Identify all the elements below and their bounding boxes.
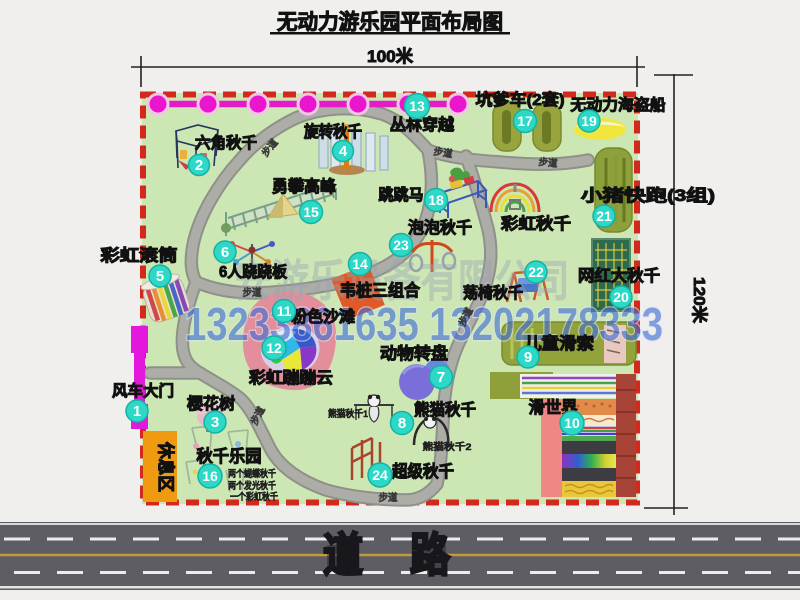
svg-text:彩虹滚筒: 彩虹滚筒 xyxy=(99,245,177,265)
svg-text:两个蝴蝶秋千: 两个蝴蝶秋千 xyxy=(228,468,276,480)
svg-text:17: 17 xyxy=(517,113,533,129)
svg-text:旋转秋千: 旋转秋千 xyxy=(303,122,362,141)
svg-text:8: 8 xyxy=(398,415,406,432)
svg-text:彩虹秋千: 彩虹秋千 xyxy=(500,214,571,233)
svg-text:韦桩三组合: 韦桩三组合 xyxy=(340,280,420,300)
svg-text:超级秋千: 超级秋千 xyxy=(392,461,454,481)
svg-text:休息区: 休息区 xyxy=(156,441,176,492)
svg-text:2: 2 xyxy=(195,157,203,174)
svg-text:6: 6 xyxy=(221,244,229,261)
svg-text:樱花树: 樱花树 xyxy=(187,394,235,413)
svg-text:步道: 步道 xyxy=(379,491,398,504)
svg-text:7: 7 xyxy=(437,369,445,386)
svg-text:泡泡秋千: 泡泡秋千 xyxy=(408,218,472,237)
svg-text:18: 18 xyxy=(428,192,444,208)
svg-text:彩虹蹦蹦云: 彩虹蹦蹦云 xyxy=(248,368,333,387)
svg-text:3: 3 xyxy=(211,414,219,431)
svg-text:22: 22 xyxy=(528,264,544,280)
svg-text:9: 9 xyxy=(524,349,532,366)
svg-text:16: 16 xyxy=(202,468,218,484)
svg-text:一个彩虹秋千: 一个彩虹秋千 xyxy=(230,491,278,503)
svg-text:粉色沙滩: 粉色沙滩 xyxy=(291,307,355,326)
svg-text:动物转盘: 动物转盘 xyxy=(380,343,449,363)
svg-text:15: 15 xyxy=(303,204,319,220)
svg-text:荡椅秋千: 荡椅秋千 xyxy=(463,283,523,302)
svg-text:6人跷跷板: 6人跷跷板 xyxy=(219,262,287,281)
svg-text:秋千乐园: 秋千乐园 xyxy=(197,446,262,466)
svg-text:勇攀高峰: 勇攀高峰 xyxy=(272,176,336,196)
svg-text:无动力游乐园平面布局图: 无动力游乐园平面布局图 xyxy=(277,10,503,34)
svg-text:13: 13 xyxy=(409,98,425,114)
svg-text:10: 10 xyxy=(564,415,580,431)
svg-text:步道: 步道 xyxy=(243,286,262,299)
svg-text:21: 21 xyxy=(596,208,612,224)
svg-text:网红大秋千: 网红大秋千 xyxy=(578,266,660,285)
svg-text:11: 11 xyxy=(277,303,292,319)
svg-text:23: 23 xyxy=(393,237,409,253)
svg-text:19: 19 xyxy=(581,113,597,129)
svg-text:风车大门: 风车大门 xyxy=(112,381,174,400)
svg-text:熊猫秋千: 熊猫秋千 xyxy=(414,400,476,419)
svg-text:熊猫秋千2: 熊猫秋千2 xyxy=(423,441,472,453)
svg-text:跳跳马: 跳跳马 xyxy=(379,185,424,204)
svg-text:4: 4 xyxy=(339,143,348,160)
svg-text:坑爹车(2套): 坑爹车(2套) xyxy=(476,90,565,109)
svg-text:5: 5 xyxy=(156,268,164,285)
svg-text:20: 20 xyxy=(613,289,629,305)
svg-text:路: 路 xyxy=(410,529,451,581)
svg-text:12: 12 xyxy=(266,340,282,356)
svg-text:24: 24 xyxy=(372,467,388,483)
svg-text:两个发光秋千: 两个发光秋千 xyxy=(228,480,276,492)
svg-text:1: 1 xyxy=(133,403,141,420)
svg-text:道: 道 xyxy=(323,529,363,581)
svg-text:小猪快跑(3组): 小猪快跑(3组) xyxy=(581,185,715,205)
svg-text:14: 14 xyxy=(352,256,368,272)
svg-text:六角秋千: 六角秋千 xyxy=(195,133,257,152)
svg-text:100米: 100米 xyxy=(367,46,414,66)
svg-text:熊猫秋千1: 熊猫秋千1 xyxy=(328,408,369,420)
svg-text:120米: 120米 xyxy=(690,277,709,324)
